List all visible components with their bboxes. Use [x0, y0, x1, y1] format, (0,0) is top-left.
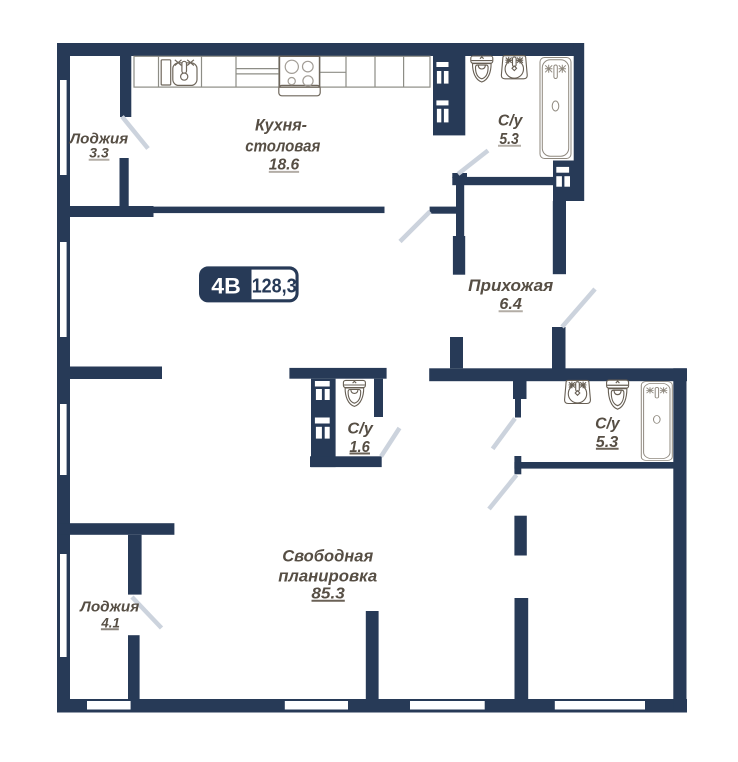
svg-text:С/у: С/у: [347, 421, 374, 438]
svg-text:Лоджия: Лоджия: [79, 599, 139, 616]
svg-text:4.1: 4.1: [100, 614, 120, 630]
svg-text:128,3: 128,3: [252, 275, 297, 297]
svg-text:4В: 4В: [211, 274, 241, 299]
svg-text:3.3: 3.3: [89, 145, 109, 161]
svg-text:столовая: столовая: [245, 137, 320, 156]
svg-text:Прихожая: Прихожая: [468, 276, 553, 295]
svg-text:Кухня-: Кухня-: [255, 116, 307, 135]
svg-text:С/у: С/у: [595, 416, 621, 433]
svg-text:Свободная: Свободная: [282, 546, 373, 565]
svg-text:С/у: С/у: [498, 113, 524, 130]
svg-text:планировка: планировка: [278, 566, 377, 585]
